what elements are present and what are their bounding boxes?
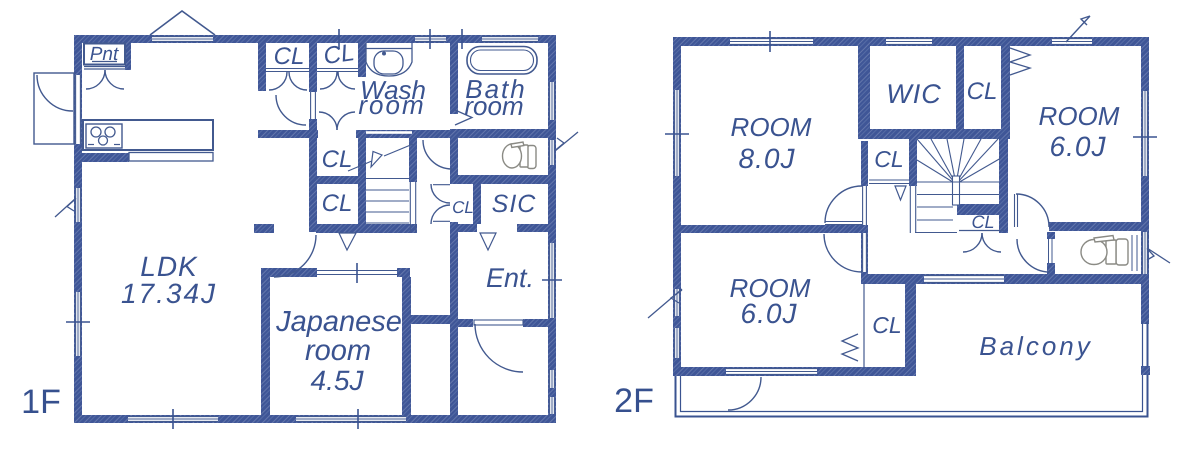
svg-text:room: room [305,335,371,367]
svg-text:CL: CL [322,190,353,217]
svg-text:SIC: SIC [492,190,537,218]
svg-text:6.0J: 6.0J [1050,131,1107,162]
svg-text:CL: CL [967,78,998,105]
svg-text:8.0J: 8.0J [739,143,796,174]
svg-text:room: room [358,90,425,120]
svg-text:Ent.: Ent. [486,263,534,293]
svg-text:2F: 2F [614,382,654,420]
svg-text:1F: 1F [21,383,61,421]
svg-text:Balcony: Balcony [979,331,1093,361]
svg-text:Japanese: Japanese [275,306,402,338]
svg-text:CL: CL [322,39,356,70]
svg-text:CL: CL [874,146,903,172]
svg-text:CL: CL [971,212,994,232]
svg-text:17.34J: 17.34J [121,278,217,309]
svg-text:CL: CL [452,198,474,217]
svg-text:CL: CL [274,43,305,70]
svg-text:4.5J: 4.5J [311,365,365,396]
svg-text:CL: CL [322,146,353,173]
svg-text:6.0J: 6.0J [741,298,798,329]
svg-text:WIC: WIC [886,79,941,109]
svg-text:ROOM: ROOM [731,112,812,142]
svg-text:CL: CL [872,312,901,338]
svg-text:room: room [464,91,523,121]
svg-text:ROOM: ROOM [1039,101,1120,131]
